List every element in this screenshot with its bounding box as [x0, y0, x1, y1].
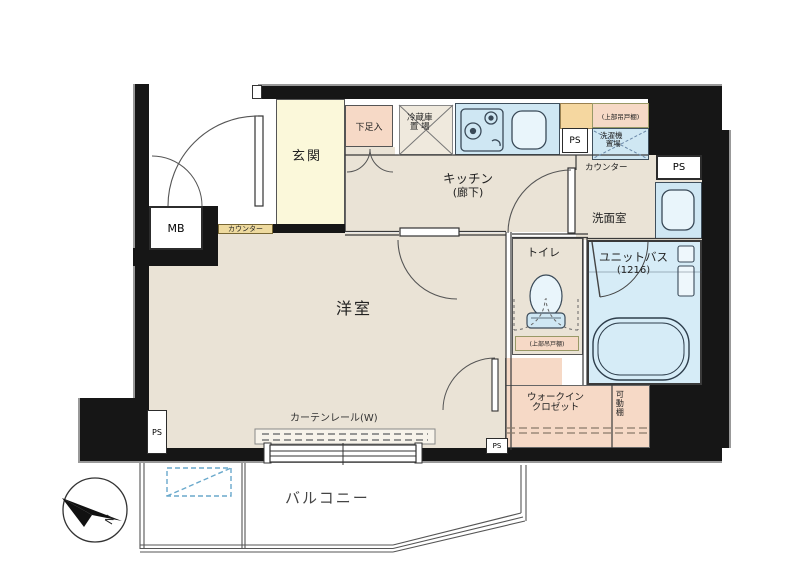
bathtub — [593, 318, 689, 380]
toilet-upper-cabinet: (上部吊戸棚) — [515, 336, 579, 351]
wic-hanger-rail — [507, 428, 648, 433]
kitchen-sink — [512, 111, 546, 149]
balcony-label: バルコニー — [285, 491, 370, 507]
genkan-label: 玄関 — [292, 150, 322, 164]
counter-strip-label: カウンター — [228, 224, 263, 234]
toilet-bath-wall — [583, 238, 587, 385]
upper-cabinet: (上部吊戸棚) — [592, 103, 649, 128]
wic-label: ウォークインクロゼット — [527, 393, 584, 413]
living-top-wall-east — [459, 232, 506, 236]
bath-label: ユニットバス(1216) — [599, 251, 668, 277]
ps-box-bottom: PS — [486, 438, 508, 454]
counter-label-washroom: カウンター — [585, 164, 628, 173]
ps-box-kitchen: PS — [562, 128, 588, 153]
toilet-top-wall — [512, 234, 588, 238]
bath-shelves — [678, 246, 694, 296]
shoe-box-label: 下足入 — [355, 120, 382, 133]
floor-plan: 下足入 (上部吊戸棚) 洗濯機置場 カウンター (上部吊戸棚) MB PS PS… — [0, 0, 800, 571]
living-label: 洋室 — [336, 301, 372, 318]
window-sliding — [264, 443, 422, 465]
washer-label: 洗濯機置場 — [600, 132, 623, 148]
shoe-closet-doors — [347, 149, 393, 172]
meter-box: MB — [149, 206, 203, 250]
living-top-wall-west — [345, 232, 399, 236]
ps-box-right: PS — [656, 155, 702, 180]
ps-box-left: PS — [147, 410, 167, 454]
mb-door-swing — [152, 156, 202, 206]
balcony-railing — [140, 463, 526, 552]
movable-shelf-label: 可動棚 — [615, 390, 623, 442]
compass — [62, 478, 127, 542]
curtain-rail — [255, 429, 435, 444]
stove — [461, 109, 503, 151]
entrance-jamb — [252, 85, 262, 99]
shoe-box: 下足入 — [345, 105, 393, 147]
plan-linework — [0, 0, 800, 571]
wic-door — [443, 358, 498, 411]
living-east-wall — [506, 232, 511, 450]
toilet-upper-cabinet-label: (上部吊戸棚) — [530, 339, 565, 348]
kitchen-label: キッチン(廊下) — [443, 172, 493, 199]
upper-cabinet-label: (上部吊戸棚) — [602, 111, 640, 121]
washroom-label: 洗面室 — [592, 212, 627, 224]
entrance-door — [168, 116, 263, 206]
counter-strip: カウンター — [218, 224, 273, 234]
washbasin-sink — [662, 190, 694, 230]
toilet-label: トイレ — [527, 247, 560, 259]
washroom-door — [508, 168, 575, 233]
fridge-label: 冷蔵庫置 場 — [407, 114, 433, 132]
curtain-rail-label: カーテンレール(W) — [290, 414, 378, 425]
toilet-fixture — [527, 275, 565, 328]
evacuation-hatch — [167, 468, 231, 496]
living-door — [398, 228, 459, 299]
